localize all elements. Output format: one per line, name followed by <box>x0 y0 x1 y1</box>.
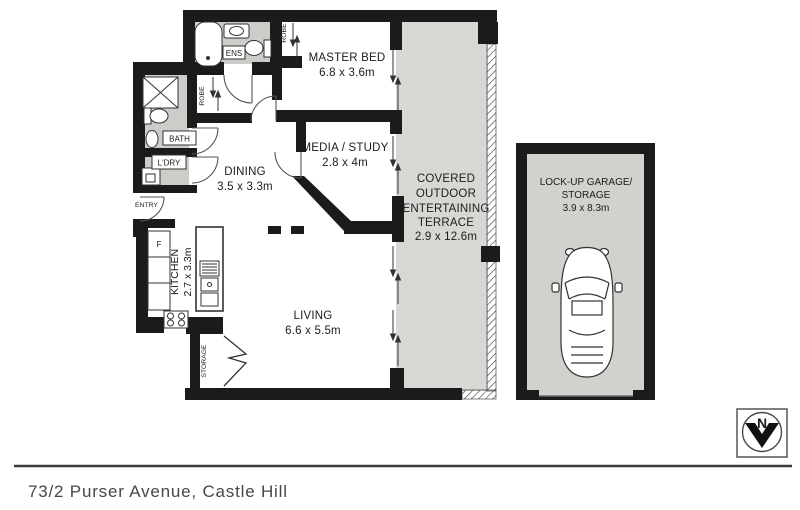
terrace-name-line2: OUTDOOR <box>416 188 476 200</box>
entry-label: ENTRY <box>135 202 158 209</box>
garage-dims: 3.9 x 8.3m <box>563 203 610 214</box>
terrace-name-line4: TERRACE <box>418 217 474 229</box>
bathroom-label: BATH <box>169 135 190 144</box>
cooktop <box>164 311 188 328</box>
kitchen-bench <box>148 257 170 283</box>
fridge-label: F <box>157 240 162 249</box>
ensuite-label: ENS <box>226 49 242 58</box>
storage-bifold-door <box>224 336 246 386</box>
footer: 73/2 Purser Avenue, Castle Hill <box>14 466 792 501</box>
floorplan-page: ENS BATH L'DRY MASTER BED 6.8 x 3.6m MED… <box>0 0 800 510</box>
kitchen-sink <box>200 261 219 306</box>
terrace-name-line1: COVERED <box>417 173 475 185</box>
north-label: N <box>757 415 767 431</box>
master-bed-name: MASTER BED <box>309 52 386 64</box>
laundry-label: L'DRY <box>158 159 181 168</box>
living-name: LIVING <box>294 310 333 322</box>
media-study-dims: 2.8 x 4m <box>322 157 368 169</box>
living-dims: 6.6 x 5.5m <box>285 325 341 337</box>
entry-door <box>140 197 164 221</box>
property-address: 73/2 Purser Avenue, Castle Hill <box>28 482 288 501</box>
master-bed-dims: 6.8 x 3.6m <box>319 67 375 79</box>
bathtub-drain <box>206 56 210 60</box>
garage: LOCK-UP GARAGE/ STORAGE 3.9 x 8.3m <box>516 143 655 400</box>
dining-name: DINING <box>224 166 265 178</box>
laundry-door <box>192 157 218 183</box>
north-arrow: N <box>737 409 787 457</box>
robe-label-hall: ROBE <box>199 86 206 106</box>
terrace-name-line3: ENTERTAINING <box>403 203 490 215</box>
robe-slider-master <box>291 23 300 57</box>
floorplan-drawing: ENS BATH L'DRY MASTER BED 6.8 x 3.6m MED… <box>0 0 800 510</box>
dining-dims: 3.5 x 3.3m <box>217 181 273 193</box>
ensuite-toilet <box>264 40 271 57</box>
kitchen-dims: 2.7 x 3.3m <box>182 247 194 296</box>
garage-name-line1: LOCK-UP GARAGE/ <box>540 177 633 188</box>
bathroom-basin <box>146 131 158 148</box>
media-study-door <box>275 152 301 178</box>
garage-name-line2: STORAGE <box>562 190 611 201</box>
shower <box>143 77 178 108</box>
robe-slider-hall <box>211 77 221 111</box>
wall-stub <box>268 226 281 234</box>
ensuite-door <box>224 75 252 103</box>
washing-machine <box>142 168 160 185</box>
kitchen-name: KITCHEN <box>169 249 181 295</box>
wall-stub <box>291 226 304 234</box>
storage-label: STORAGE <box>201 344 208 378</box>
media-study-name: MEDIA / STUDY <box>302 142 389 154</box>
robe-label-master: ROBE <box>281 23 288 43</box>
kitchen-bench <box>148 283 170 310</box>
terrace-dims: 2.9 x 12.6m <box>415 231 477 243</box>
